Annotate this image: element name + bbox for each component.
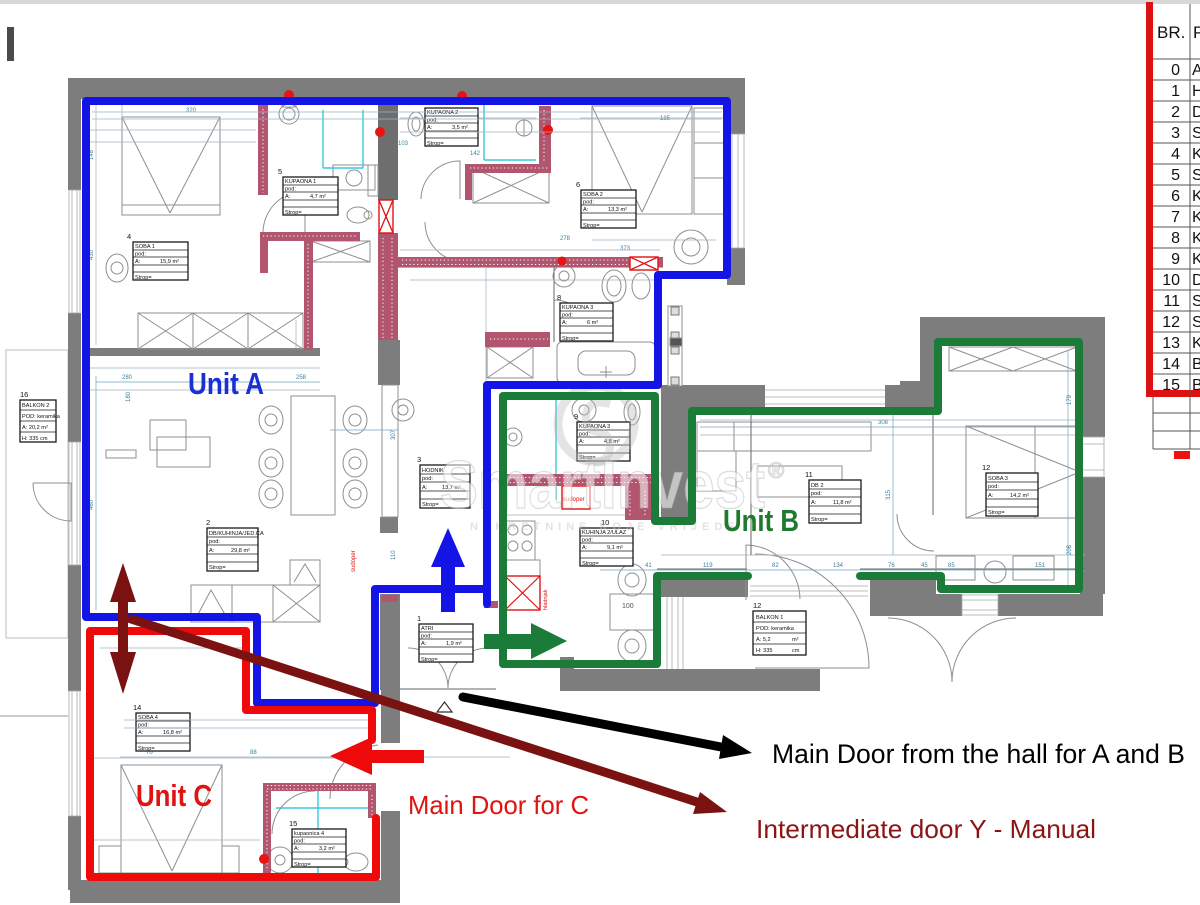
svg-text:280: 280	[122, 375, 133, 381]
svg-text:Strop=: Strop=	[811, 517, 828, 523]
svg-text:151: 151	[1035, 563, 1046, 569]
svg-text:13,3 m²: 13,3 m²	[608, 207, 627, 213]
svg-text:8: 8	[557, 293, 561, 302]
svg-text:180: 180	[126, 391, 132, 402]
svg-text:9: 9	[1171, 251, 1180, 268]
svg-text:Unit B: Unit B	[723, 503, 799, 538]
svg-text:6 m²: 6 m²	[587, 320, 598, 326]
svg-text:KUPAONA 3: KUPAONA 3	[562, 305, 593, 311]
svg-text:100: 100	[622, 603, 634, 610]
svg-text:142: 142	[470, 151, 481, 157]
svg-text:sudoper: sudoper	[351, 550, 357, 572]
svg-text:A:: A:	[427, 125, 433, 131]
svg-text:hladnjak: hladnjak	[543, 589, 549, 610]
svg-text:A:: A:	[583, 207, 589, 213]
svg-text:A:: A:	[135, 259, 141, 265]
svg-text:76: 76	[888, 563, 895, 569]
svg-text:12: 12	[753, 601, 761, 610]
svg-text:SOBA 1: SOBA 1	[135, 244, 155, 250]
svg-text:3,2 m²: 3,2 m²	[319, 846, 335, 852]
svg-text:pod:: pod:	[583, 200, 594, 206]
svg-text:29,8 m²: 29,8 m²	[231, 548, 250, 554]
svg-text:Main Door for C: Main Door for C	[408, 790, 589, 820]
svg-text:11,8 m²: 11,8 m²	[833, 500, 852, 506]
svg-text:Strop=: Strop=	[427, 141, 444, 147]
svg-text:D: D	[1192, 272, 1200, 289]
svg-text:12: 12	[982, 463, 990, 472]
svg-text:pod:: pod:	[421, 634, 432, 640]
svg-text:1: 1	[1171, 83, 1180, 100]
svg-text:14: 14	[1162, 356, 1180, 373]
svg-text:4,7 m²: 4,7 m²	[310, 194, 326, 200]
svg-text:179: 179	[1067, 394, 1073, 405]
svg-text:0: 0	[1171, 62, 1180, 79]
svg-text:pod:: pod:	[422, 476, 433, 482]
svg-text:BALKON 2: BALKON 2	[22, 403, 49, 409]
svg-text:278: 278	[560, 236, 571, 242]
svg-text:S: S	[1192, 167, 1200, 184]
svg-text:41: 41	[645, 563, 652, 569]
svg-text:Strop=: Strop=	[135, 275, 152, 281]
svg-text:3,5 m²: 3,5 m²	[452, 125, 468, 131]
svg-text:Strop=: Strop=	[138, 746, 155, 752]
svg-text:208: 208	[1067, 544, 1073, 555]
svg-text:15: 15	[1162, 377, 1180, 394]
svg-text:Strop=: Strop=	[583, 223, 600, 229]
svg-text:9,1 m²: 9,1 m²	[607, 545, 623, 551]
svg-text:6: 6	[1171, 188, 1180, 205]
svg-text:Unit C: Unit C	[136, 778, 212, 813]
svg-text:BR.: BR.	[1157, 23, 1185, 42]
svg-text:Strop=: Strop=	[209, 565, 226, 571]
svg-text:pod:: pod:	[811, 491, 822, 497]
svg-text:7: 7	[1171, 209, 1180, 226]
svg-text:pod:: pod:	[294, 839, 305, 845]
svg-text:315: 315	[886, 489, 892, 500]
svg-text:3: 3	[417, 455, 421, 464]
svg-text:A:: A:	[285, 194, 291, 200]
svg-text:A: A	[1192, 62, 1200, 79]
svg-text:119: 119	[703, 563, 713, 569]
svg-text:pod:: pod:	[285, 187, 296, 193]
svg-text:S: S	[1192, 314, 1200, 331]
svg-text:ATRI: ATRI	[421, 626, 434, 632]
svg-text:pod:: pod:	[562, 313, 573, 319]
svg-text:3: 3	[1171, 125, 1180, 142]
svg-text:Strop=: Strop=	[422, 502, 439, 508]
svg-text:Unit A: Unit A	[188, 366, 264, 401]
svg-text:103: 103	[398, 141, 409, 147]
svg-text:8: 8	[1171, 230, 1180, 247]
svg-text:Strop=: Strop=	[582, 561, 599, 567]
svg-text:45: 45	[921, 563, 928, 569]
svg-text:A:: A:	[209, 548, 215, 554]
svg-text:13: 13	[1162, 335, 1180, 352]
svg-text:110: 110	[391, 550, 397, 560]
svg-text:88: 88	[250, 750, 257, 756]
svg-text:®: ®	[768, 458, 784, 483]
svg-text:82: 82	[772, 563, 779, 569]
svg-text:A:: A:	[138, 730, 144, 736]
svg-text:16,8 m²: 16,8 m²	[163, 730, 182, 736]
svg-text:15: 15	[289, 819, 297, 828]
svg-text:4: 4	[127, 232, 131, 241]
svg-text:308: 308	[878, 420, 889, 426]
svg-text:K: K	[1192, 188, 1200, 205]
svg-text:10: 10	[1162, 272, 1180, 289]
svg-text:A:: A:	[294, 846, 300, 852]
svg-text:H: H	[1192, 83, 1200, 100]
svg-text:pod:: pod:	[582, 538, 593, 544]
svg-text:D: D	[1192, 104, 1200, 121]
svg-text:KUPAONA 1: KUPAONA 1	[285, 179, 316, 185]
svg-text:Strop=: Strop=	[988, 510, 1005, 516]
svg-text:1: 1	[417, 614, 421, 623]
svg-text:K: K	[1192, 230, 1200, 247]
svg-text:1,9 m²: 1,9 m²	[446, 641, 462, 647]
svg-text:KUPAONA 2: KUPAONA 2	[427, 110, 458, 116]
svg-text:S: S	[1192, 293, 1200, 310]
svg-text:SOBA 2: SOBA 2	[583, 192, 603, 198]
svg-text:85: 85	[948, 563, 955, 569]
svg-text:DB 2: DB 2	[811, 483, 823, 489]
svg-text:P: P	[1193, 23, 1200, 42]
svg-text:373: 373	[620, 246, 631, 252]
svg-text:12: 12	[1162, 314, 1180, 331]
svg-text:pod:: pod:	[988, 484, 999, 490]
svg-text:A:: A:	[579, 439, 585, 445]
svg-text:A:: A:	[422, 485, 428, 491]
svg-text:POD: keramika: POD: keramika	[756, 626, 795, 632]
svg-text:5: 5	[1171, 167, 1180, 184]
svg-text:4: 4	[1171, 146, 1180, 163]
svg-text:SOBA 3: SOBA 3	[988, 476, 1008, 482]
svg-text:A: 5,2: A: 5,2	[756, 637, 771, 643]
svg-text:9: 9	[574, 412, 578, 421]
svg-text:pod:: pod:	[209, 539, 220, 545]
svg-text:14: 14	[133, 703, 141, 712]
svg-text:K: K	[1192, 209, 1200, 226]
svg-text:A:: A:	[421, 641, 427, 647]
svg-text:K: K	[1192, 251, 1200, 268]
svg-text:6: 6	[576, 180, 580, 189]
svg-text:pod:: pod:	[135, 252, 146, 258]
svg-text:2: 2	[1171, 104, 1180, 121]
svg-text:307: 307	[391, 429, 397, 440]
svg-text:H: 335: H: 335	[756, 648, 772, 654]
svg-text:NEKRETNINE KOJE VRIJEDE: NEKRETNINE KOJE VRIJEDE	[470, 521, 740, 533]
svg-text:134: 134	[833, 563, 844, 569]
svg-text:A:: A:	[582, 545, 588, 551]
svg-text:Strop=: Strop=	[285, 210, 302, 216]
svg-text:258: 258	[296, 375, 307, 381]
svg-text:A:: A:	[562, 320, 568, 326]
svg-text:Main Door from the hall for A: Main Door from the hall for A and B	[772, 739, 1185, 769]
svg-text:16: 16	[20, 390, 28, 399]
svg-text:B: B	[1192, 356, 1200, 373]
svg-text:A:: A:	[988, 493, 994, 499]
svg-text:pod:: pod:	[138, 723, 149, 729]
svg-text:S: S	[1192, 125, 1200, 142]
svg-text:320: 320	[186, 108, 197, 114]
svg-text:POD: keramika: POD: keramika	[22, 414, 61, 420]
svg-text:Strop=: Strop=	[421, 657, 438, 663]
svg-text:Intermediate door Y - Manual: Intermediate door Y - Manual	[756, 814, 1096, 844]
svg-text:11: 11	[1163, 293, 1180, 310]
svg-text:cm: cm	[792, 648, 800, 654]
svg-text:kupaonica 4: kupaonica 4	[294, 831, 324, 837]
svg-text:DB/KUHINJA/JED.ĆA: DB/KUHINJA/JED.ĆA	[209, 530, 264, 537]
svg-text:BALKON 1: BALKON 1	[756, 615, 783, 621]
svg-text:5: 5	[278, 167, 282, 176]
svg-text:A: 20,2 m²: A: 20,2 m²	[22, 425, 48, 431]
svg-text:m²: m²	[792, 637, 799, 643]
svg-text:Strop=: Strop=	[294, 862, 311, 868]
svg-text:14,2 m²: 14,2 m²	[1010, 493, 1029, 499]
svg-text:2: 2	[206, 518, 210, 527]
svg-text:pod:: pod:	[427, 118, 438, 124]
svg-text:H: 335 cm: H: 335 cm	[22, 436, 48, 442]
svg-text:K: K	[1192, 146, 1200, 163]
svg-text:K: K	[1192, 335, 1200, 352]
svg-text:11: 11	[805, 470, 813, 479]
svg-text:A:: A:	[811, 500, 817, 506]
svg-text:B: B	[1192, 377, 1200, 394]
svg-text:Strop=: Strop=	[562, 336, 579, 342]
svg-text:15,9 m²: 15,9 m²	[160, 259, 179, 265]
